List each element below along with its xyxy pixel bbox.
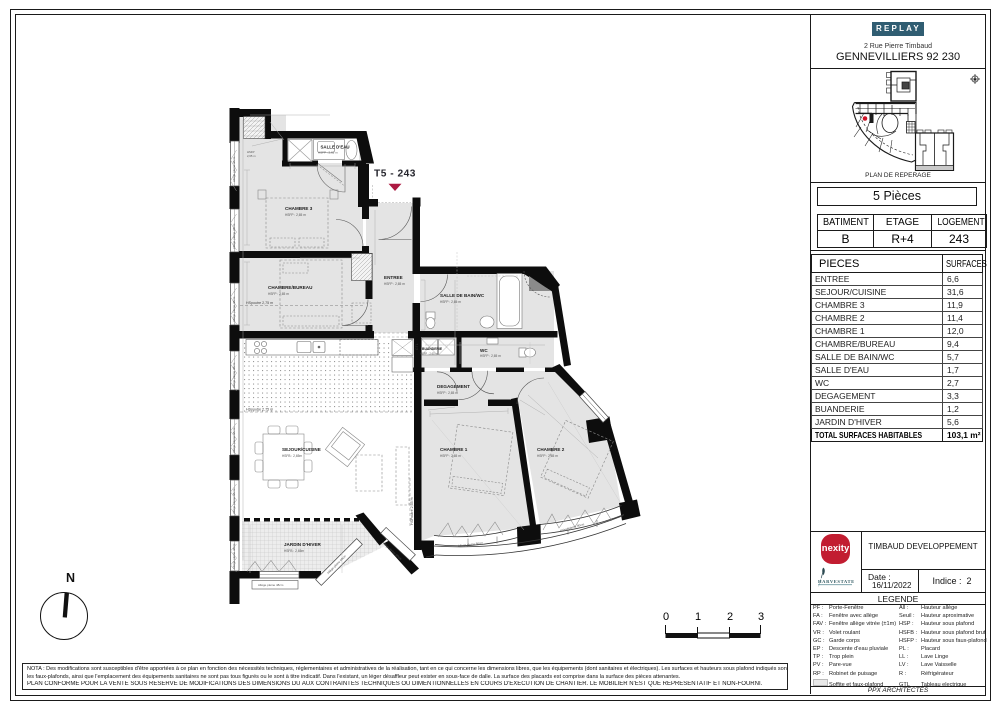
svg-text:CHAMBRE 2: CHAMBRE 2 xyxy=(537,447,565,452)
svg-text:2,65 m: 2,65 m xyxy=(247,154,256,158)
svg-text:DEGAGEMENT: DEGAGEMENT xyxy=(437,384,470,389)
svg-text:HSpoutre 2,75 m: HSpoutre 2,75 m xyxy=(246,301,273,305)
svg-text:HSFP : 2,65 m: HSFP : 2,65 m xyxy=(440,300,461,304)
svg-text:HSFB : 2,65m: HSFB : 2,65m xyxy=(284,549,304,553)
svg-text:HSFP : 2,65 m: HSFP : 2,65 m xyxy=(285,213,306,217)
svg-text:HSFP : 2,65 m: HSFP : 2,65 m xyxy=(537,454,558,458)
svg-text:Allège pleine 48cm: Allège pleine 48cm xyxy=(232,543,236,569)
svg-text:BUANDERIE: BUANDERIE xyxy=(422,347,443,351)
svg-text:Allège pleine 48cm: Allège pleine 48cm xyxy=(232,296,236,322)
svg-text:Allège pleine 48cm: Allège pleine 48cm xyxy=(232,488,236,514)
svg-text:HSFP : 2,65 m: HSFP : 2,65 m xyxy=(480,354,501,358)
svg-text:HSFP : 2,65 m: HSFP : 2,65 m xyxy=(318,151,338,155)
svg-text:CHAMBRE 1: CHAMBRE 1 xyxy=(440,447,468,452)
svg-text:GTL: GTL xyxy=(415,343,419,350)
svg-text:HSFP : 2,65 m: HSFP : 2,65 m xyxy=(420,352,438,356)
svg-text:Allège pleine 48cm: Allège pleine 48cm xyxy=(232,362,236,388)
svg-text:Allège pleine 48cm: Allège pleine 48cm xyxy=(232,156,236,182)
svg-text:HSpoutre 2,75 m: HSpoutre 2,75 m xyxy=(246,408,273,412)
svg-text:HSPoutre 2,65 m: HSPoutre 2,65 m xyxy=(410,497,414,525)
svg-text:SALLE DE BAIN/WC: SALLE DE BAIN/WC xyxy=(440,293,485,298)
svg-text:ENTREE: ENTREE xyxy=(384,275,403,280)
svg-text:CHAMBRE/BUREAU: CHAMBRE/BUREAU xyxy=(268,285,313,290)
svg-text:JARDIN D'HIVER: JARDIN D'HIVER xyxy=(284,542,322,547)
svg-text:T5 - 243: T5 - 243 xyxy=(374,169,416,180)
svg-text:HSFB : 2,65m: HSFB : 2,65m xyxy=(282,454,302,458)
svg-text:CHAMBRE 3: CHAMBRE 3 xyxy=(285,206,313,211)
svg-text:HSFP : 2,65 m: HSFP : 2,65 m xyxy=(384,282,405,286)
svg-text:HSFP : 2,65 m: HSFP : 2,65 m xyxy=(437,391,458,395)
svg-text:Allège pleine 48cm: Allège pleine 48cm xyxy=(258,583,284,587)
svg-text:HARVESTATE: HARVESTATE xyxy=(818,579,855,584)
svg-text:SEJOUR/CUISINE: SEJOUR/CUISINE xyxy=(282,447,321,452)
svg-text:SALLE D'EAU: SALLE D'EAU xyxy=(321,145,350,150)
svg-text:HSFP : 2,65 m: HSFP : 2,65 m xyxy=(440,454,461,458)
svg-text:WC: WC xyxy=(480,348,488,353)
svg-text:Allège pleine 48cm: Allège pleine 48cm xyxy=(232,223,236,249)
svg-text:HSFP : 2,65 m: HSFP : 2,65 m xyxy=(268,292,289,296)
svg-text:Allège pleine 48cm: Allège pleine 48cm xyxy=(232,427,236,453)
